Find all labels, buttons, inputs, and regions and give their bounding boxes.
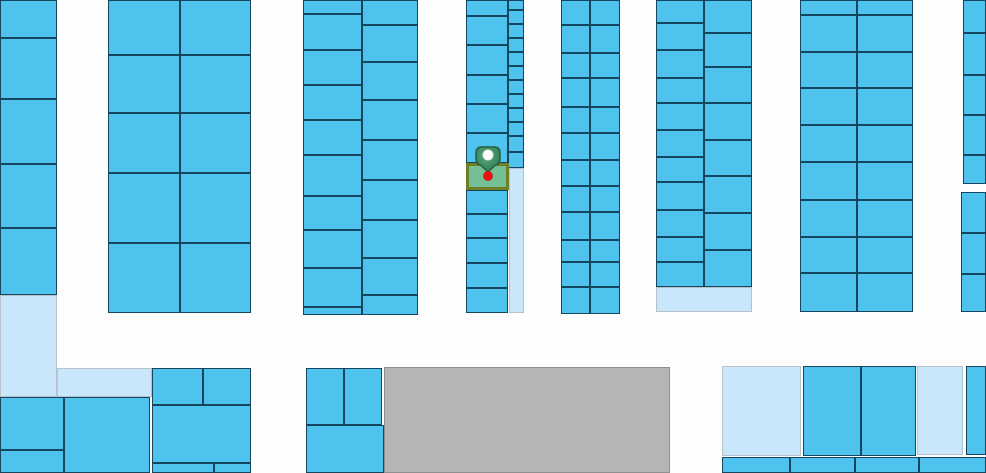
parcel[interactable] — [590, 160, 620, 186]
parcel[interactable] — [508, 152, 524, 168]
parcel[interactable] — [466, 0, 508, 16]
parcel[interactable] — [561, 53, 590, 78]
parcel[interactable] — [800, 15, 857, 52]
parcel[interactable] — [590, 212, 620, 240]
parcel[interactable] — [303, 196, 362, 230]
parcel[interactable] — [466, 104, 508, 133]
parcel[interactable] — [857, 0, 913, 15]
water-parcel[interactable] — [722, 366, 801, 456]
parcel[interactable] — [800, 88, 857, 125]
parcel[interactable] — [362, 100, 418, 140]
parcel[interactable] — [362, 140, 418, 180]
parcel[interactable] — [590, 0, 620, 25]
parcel[interactable] — [656, 78, 704, 103]
parcel[interactable] — [508, 10, 524, 24]
parcel[interactable] — [590, 107, 620, 133]
parcel[interactable] — [656, 130, 704, 157]
parcel[interactable] — [800, 162, 857, 200]
parcel[interactable] — [508, 108, 524, 122]
parcel[interactable] — [561, 0, 590, 25]
parcel[interactable] — [466, 16, 508, 45]
parcel[interactable] — [303, 268, 362, 307]
parcel[interactable] — [64, 397, 150, 473]
parcel[interactable] — [857, 162, 913, 200]
parcel[interactable] — [800, 200, 857, 237]
parcel[interactable] — [704, 103, 752, 140]
parcel[interactable] — [704, 250, 752, 287]
parcel[interactable] — [790, 457, 855, 473]
parcel[interactable] — [303, 0, 362, 14]
parcel[interactable] — [800, 273, 857, 312]
parcel[interactable] — [656, 0, 704, 23]
parcel[interactable] — [857, 52, 913, 88]
parcel[interactable] — [0, 450, 64, 473]
parcel[interactable] — [803, 366, 861, 456]
parcel[interactable] — [180, 55, 251, 113]
parcel[interactable] — [590, 186, 620, 212]
parcel[interactable] — [466, 75, 508, 104]
parcel[interactable] — [861, 366, 916, 456]
parcel[interactable] — [466, 45, 508, 75]
parcel[interactable] — [919, 457, 986, 473]
location-marker[interactable] — [470, 142, 506, 186]
parcel[interactable] — [561, 78, 590, 107]
parcel[interactable] — [722, 457, 790, 473]
parcel[interactable] — [0, 0, 57, 38]
parcel[interactable] — [963, 0, 986, 33]
parcel[interactable] — [108, 113, 180, 173]
parcel[interactable] — [0, 99, 57, 164]
parcel[interactable] — [466, 263, 508, 288]
parcel[interactable] — [303, 85, 362, 120]
parcel[interactable] — [857, 125, 913, 162]
parcel[interactable] — [857, 200, 913, 237]
parcel[interactable] — [152, 463, 214, 473]
parcel[interactable] — [857, 237, 913, 273]
parcel[interactable] — [590, 287, 620, 314]
parcel[interactable] — [508, 122, 524, 136]
parcel[interactable] — [306, 368, 344, 425]
parcel[interactable] — [180, 243, 251, 313]
parcel[interactable] — [800, 52, 857, 88]
parcel[interactable] — [656, 50, 704, 78]
parcel[interactable] — [857, 15, 913, 52]
parcel[interactable] — [800, 125, 857, 162]
parcel[interactable] — [590, 78, 620, 107]
pin-circle-icon — [483, 150, 493, 160]
parcel[interactable] — [508, 80, 524, 94]
parcel[interactable] — [362, 180, 418, 220]
parcel[interactable] — [303, 307, 362, 315]
parcel[interactable] — [590, 133, 620, 160]
parcel[interactable] — [0, 397, 64, 450]
parcel[interactable] — [963, 75, 986, 115]
parcel[interactable] — [656, 182, 704, 210]
parcel[interactable] — [362, 258, 418, 295]
parcel[interactable] — [561, 133, 590, 160]
parcel[interactable] — [362, 295, 418, 315]
parcel[interactable] — [590, 25, 620, 53]
parcel[interactable] — [704, 67, 752, 103]
water-parcel[interactable] — [656, 287, 752, 312]
parcel[interactable] — [303, 14, 362, 50]
parcel[interactable] — [0, 164, 57, 228]
parcel[interactable] — [108, 173, 180, 243]
parcel[interactable] — [656, 103, 704, 130]
parcel[interactable] — [800, 0, 857, 15]
parcel[interactable] — [203, 368, 251, 405]
parcel[interactable] — [362, 62, 418, 100]
parcel[interactable] — [508, 0, 524, 10]
parcel[interactable] — [180, 0, 251, 55]
parcel[interactable] — [590, 240, 620, 262]
parcel[interactable] — [152, 368, 203, 405]
water-parcel[interactable] — [509, 168, 524, 313]
water-parcel[interactable] — [0, 295, 57, 397]
parcel[interactable] — [152, 405, 251, 463]
parcel[interactable] — [508, 94, 524, 108]
parcel[interactable] — [508, 136, 524, 152]
map-canvas[interactable] — [0, 0, 986, 473]
parcel[interactable] — [590, 53, 620, 78]
parcel[interactable] — [704, 140, 752, 176]
parcel[interactable] — [508, 38, 524, 52]
parcel[interactable] — [963, 155, 986, 184]
parcel[interactable] — [306, 425, 384, 473]
parcel[interactable] — [466, 288, 508, 313]
parcel[interactable] — [344, 368, 382, 425]
parcel[interactable] — [656, 157, 704, 182]
parcel[interactable] — [0, 228, 57, 295]
red-dot-icon — [483, 171, 492, 180]
parcel[interactable] — [362, 220, 418, 258]
parcel[interactable] — [857, 88, 913, 125]
parcel[interactable] — [180, 173, 251, 243]
parcel[interactable] — [303, 230, 362, 268]
parcel[interactable] — [561, 287, 590, 314]
parcel[interactable] — [561, 240, 590, 262]
parcel[interactable] — [108, 243, 180, 313]
parcel[interactable] — [855, 457, 919, 473]
water-parcel[interactable] — [57, 368, 152, 397]
parcel[interactable] — [704, 33, 752, 67]
parcel[interactable] — [466, 238, 508, 263]
parcel[interactable] — [561, 212, 590, 240]
parcel[interactable] — [362, 0, 418, 25]
parcel[interactable] — [857, 273, 913, 312]
parcel[interactable] — [590, 262, 620, 287]
parcel[interactable] — [704, 213, 752, 250]
parcel[interactable] — [961, 233, 986, 274]
parcel[interactable] — [561, 25, 590, 53]
parcel[interactable] — [800, 237, 857, 273]
parcel[interactable] — [303, 120, 362, 155]
parcel[interactable] — [704, 176, 752, 213]
parcel[interactable] — [961, 274, 986, 312]
parcel[interactable] — [561, 160, 590, 186]
parcel[interactable] — [508, 52, 524, 66]
parcel[interactable] — [561, 262, 590, 287]
water-parcel[interactable] — [917, 366, 963, 455]
parcel[interactable] — [466, 190, 508, 214]
parcel[interactable] — [963, 33, 986, 75]
parcel[interactable] — [108, 0, 180, 55]
parcel[interactable] — [0, 38, 57, 99]
parcel[interactable] — [303, 50, 362, 85]
parcel[interactable] — [966, 366, 986, 455]
parcel[interactable] — [180, 113, 251, 173]
parcel[interactable] — [961, 192, 986, 233]
parcel[interactable] — [656, 237, 704, 262]
parcel[interactable] — [704, 0, 752, 33]
parcel[interactable] — [508, 24, 524, 38]
parcel[interactable] — [214, 463, 251, 473]
parcel[interactable] — [508, 66, 524, 80]
parcel[interactable] — [656, 210, 704, 237]
parcel[interactable] — [561, 107, 590, 133]
parcel[interactable] — [656, 262, 704, 287]
parcel[interactable] — [656, 23, 704, 50]
pin-icon — [476, 147, 500, 172]
parcel[interactable] — [362, 25, 418, 62]
building-parcel[interactable] — [384, 367, 670, 473]
parcel[interactable] — [108, 55, 180, 113]
parcel[interactable] — [303, 155, 362, 196]
parcel[interactable] — [466, 214, 508, 238]
parcel[interactable] — [561, 186, 590, 212]
parcel[interactable] — [963, 115, 986, 155]
